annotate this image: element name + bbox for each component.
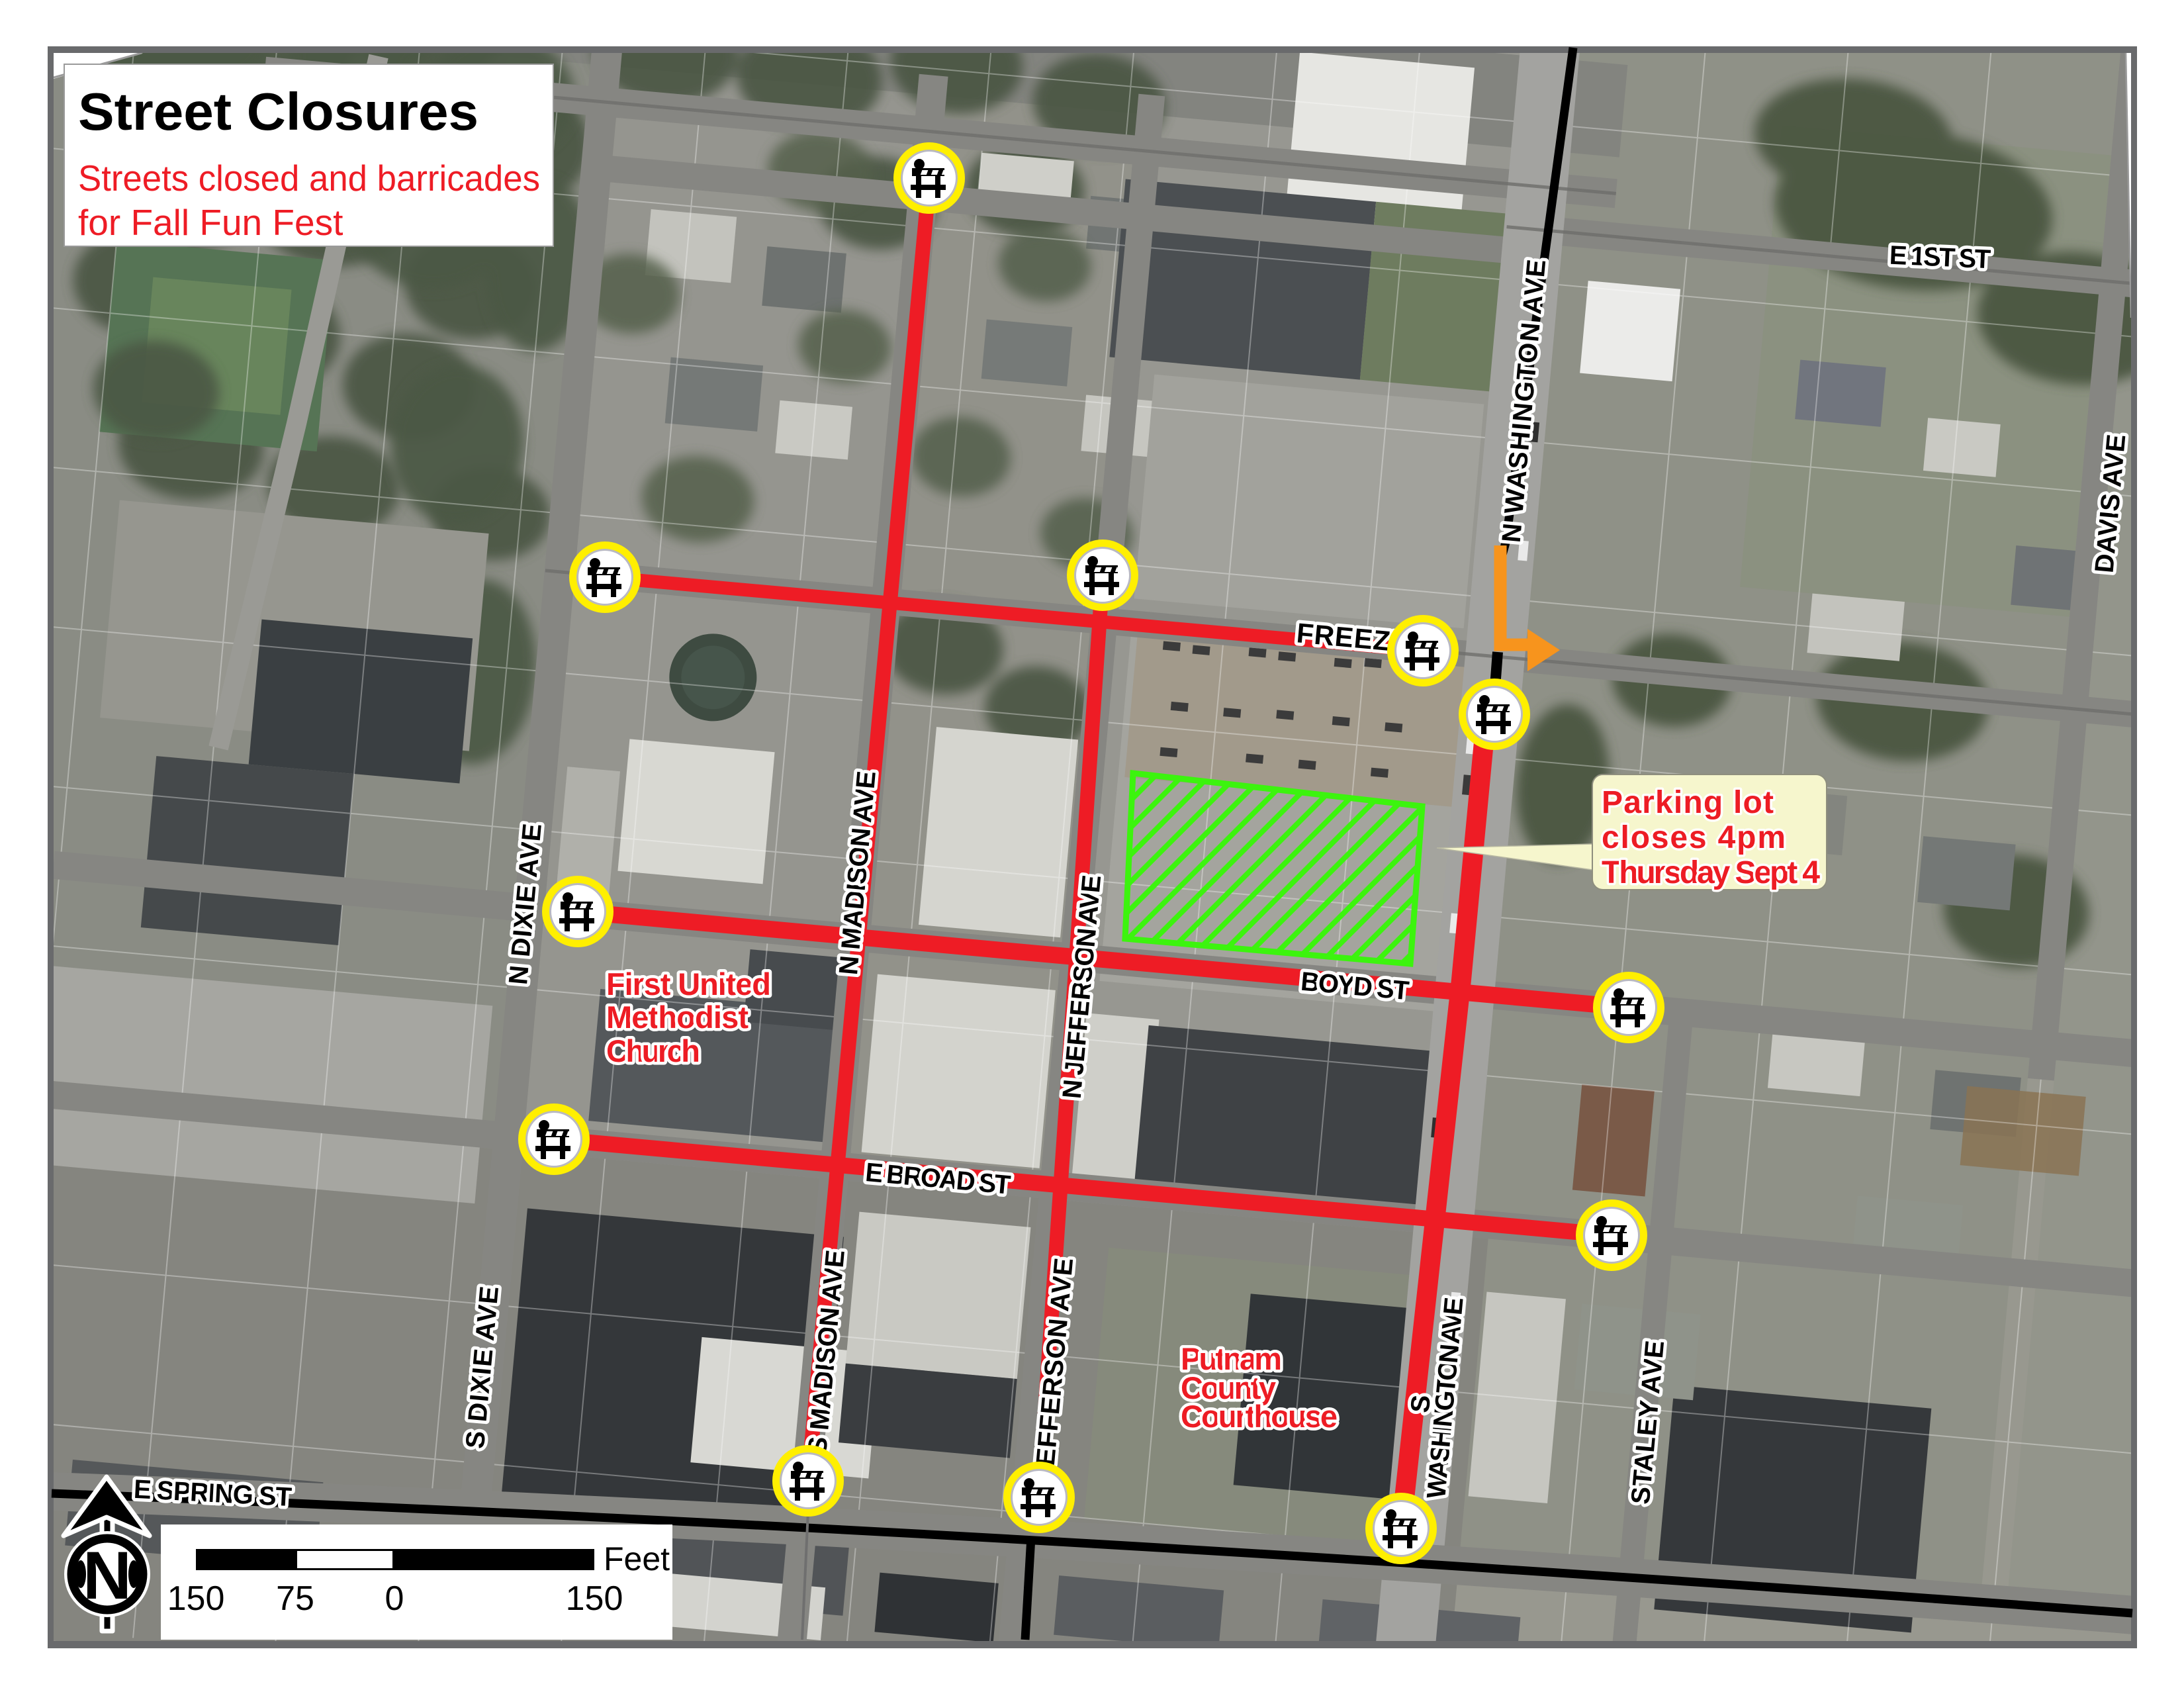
svg-text:Courthouse: Courthouse: [1181, 1399, 1338, 1434]
svg-text:First United: First United: [606, 966, 771, 1002]
svg-text:N: N: [83, 1538, 132, 1613]
svg-text:S: S: [1406, 1393, 1436, 1414]
svg-text:closes 4pm: closes 4pm: [1602, 820, 1786, 855]
svg-text:Streets closed and barricades: Streets closed and barricades: [78, 158, 540, 199]
svg-text:Street Closures: Street Closures: [78, 82, 478, 141]
svg-text:Church: Church: [606, 1033, 700, 1068]
svg-text:Feet: Feet: [604, 1540, 670, 1577]
svg-text:Methodist: Methodist: [606, 1000, 749, 1035]
svg-text:0: 0: [385, 1579, 404, 1618]
svg-text:Thursday Sept 4: Thursday Sept 4: [1602, 855, 1820, 890]
svg-text:150: 150: [566, 1579, 623, 1618]
svg-text:Parking lot: Parking lot: [1602, 785, 1774, 820]
svg-text:150: 150: [167, 1579, 225, 1618]
svg-text:E 1ST ST: E 1ST ST: [1889, 241, 1992, 275]
svg-text:for Fall Fun Fest: for Fall Fun Fest: [78, 202, 343, 243]
svg-text:75: 75: [276, 1579, 314, 1618]
